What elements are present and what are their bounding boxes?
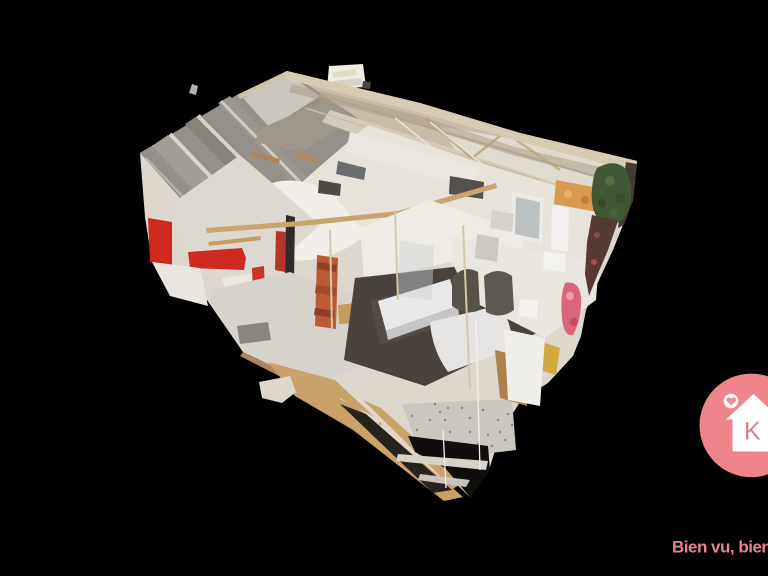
svg-text:K: K bbox=[744, 418, 761, 446]
svg-text:Bien vu, bien: Bien vu, bien bbox=[672, 538, 768, 557]
